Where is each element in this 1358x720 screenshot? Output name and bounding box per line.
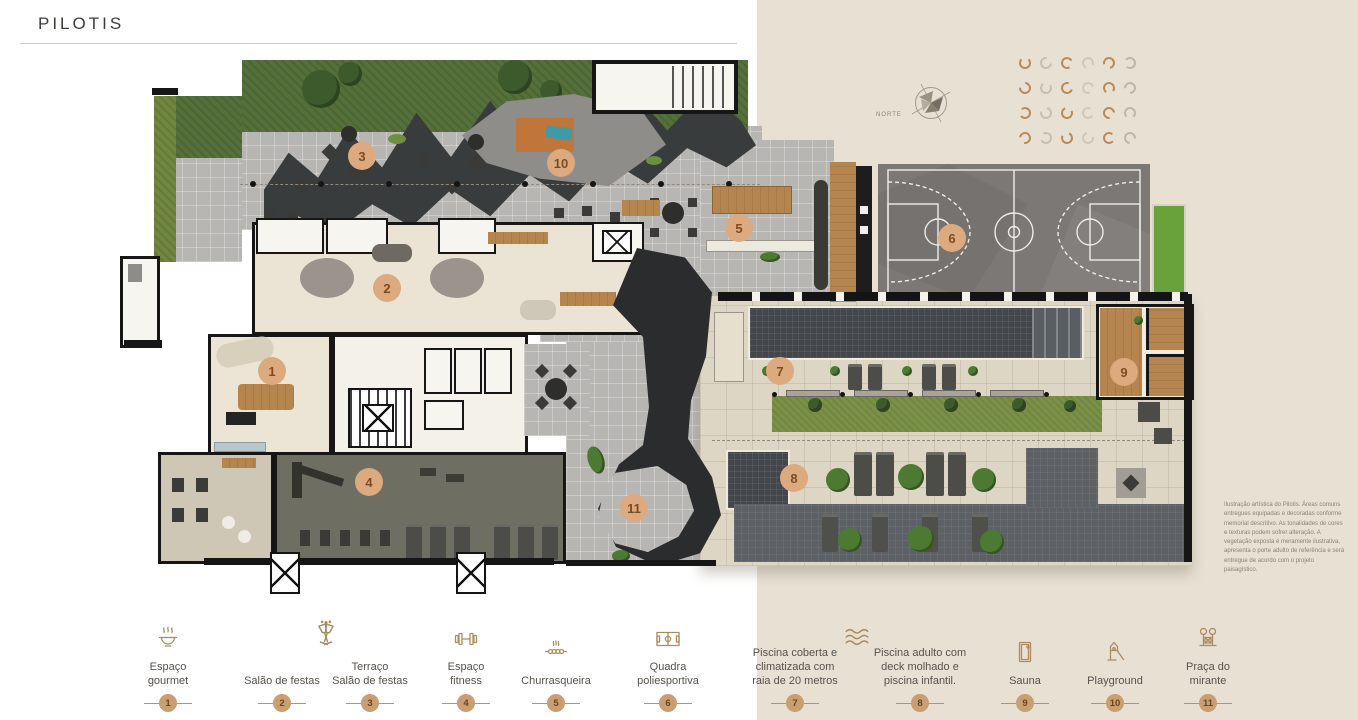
lounge-seat [554, 208, 564, 218]
gym-equipment [380, 530, 390, 546]
legend-item-espaco-gourmet: Espaço gourmet 1 [104, 618, 232, 712]
lawn-bench [990, 390, 1044, 397]
seating-cube [1138, 402, 1160, 422]
column-dot [386, 181, 392, 187]
column-dot [1044, 392, 1049, 397]
legend-item-churrasqueira: Churrasqueira 5 [492, 618, 620, 712]
left-hedge-strip [154, 96, 176, 262]
legend-badge: 2 [258, 694, 306, 712]
workout-bench [420, 468, 436, 476]
lawn-strip [772, 396, 1102, 432]
party-table [430, 258, 484, 298]
column-dot [908, 392, 913, 397]
pool-lounger [922, 364, 936, 390]
seating-cube [1154, 428, 1172, 444]
sauna-door-icon [1010, 638, 1040, 668]
lawn-tree [1064, 400, 1076, 412]
colonnade-wall [718, 292, 1188, 301]
restroom-block [256, 218, 324, 254]
terrace-table [341, 126, 357, 142]
badge-number: 7 [786, 694, 804, 712]
gym-equipment [340, 530, 350, 546]
page: PILOTIS NORTE Ilustração artística do Pi… [0, 0, 1358, 720]
tree [302, 70, 340, 108]
column-dot [318, 181, 324, 187]
dumbbell-icon [451, 624, 481, 654]
badge-number: 6 [659, 694, 677, 712]
garden-corner-wall [152, 88, 178, 95]
column-dot [454, 181, 460, 187]
legend-label: Churrasqueira [521, 674, 591, 688]
service-shaft [456, 552, 486, 594]
pool-plant [830, 366, 840, 376]
bbq-appliance [860, 226, 868, 234]
legend-label: Piscina coberta e climatizada com raia d… [752, 646, 838, 688]
lawn-tree [944, 398, 958, 412]
pouf [238, 530, 251, 543]
badge-line [804, 703, 819, 704]
deck-plant [826, 468, 850, 492]
deck-lounger [926, 452, 944, 496]
deck-lounger [948, 452, 966, 496]
badge-number: 8 [911, 694, 929, 712]
badge-line [379, 703, 394, 704]
wet-deck-side [1026, 448, 1098, 508]
legend-badge: 5 [532, 694, 580, 712]
legend-label: Espaço fitness [448, 660, 485, 688]
badge-number: 1 [159, 694, 177, 712]
badge-line [1184, 703, 1199, 704]
deck-plant [972, 468, 996, 492]
plan-marker-2: 2 [373, 274, 401, 302]
legend-label: Terraço Salão de festas [332, 660, 408, 688]
deck-plant [898, 464, 924, 490]
lounge-seat [582, 206, 592, 216]
kitchen-counter [214, 442, 266, 452]
pool-lounger [868, 364, 882, 390]
pool-plant [902, 366, 912, 376]
legend-item-praca-mirante: Praça do mirante 11 [1144, 618, 1272, 712]
plan-marker-4: 4 [355, 468, 383, 496]
badge-line [644, 703, 659, 704]
badge-line [929, 703, 944, 704]
legend-badge: 3 [346, 694, 394, 712]
badge-line [896, 703, 911, 704]
round-table [545, 378, 567, 400]
badge-line [442, 703, 457, 704]
party-table [300, 258, 354, 298]
pool-steps [1032, 308, 1082, 358]
legend-label: Sauna [1009, 674, 1041, 688]
round-dining-table [662, 202, 684, 224]
lounge-bench [222, 458, 256, 468]
badge-line [1124, 703, 1139, 704]
plan-marker-1: 1 [258, 357, 286, 385]
lawn-bench [786, 390, 840, 397]
lawn-tree [1012, 398, 1026, 412]
shrub [388, 134, 406, 144]
badge-line [177, 703, 192, 704]
badge-line [1217, 703, 1232, 704]
column-dot [976, 392, 981, 397]
sauna-plant [1134, 316, 1143, 325]
legend-badge: 1 [144, 694, 192, 712]
badge-line [291, 703, 306, 704]
lounge-armchair [196, 508, 208, 522]
plan-marker-5: 5 [725, 214, 753, 242]
bbq-appliance [860, 206, 868, 214]
east-boundary-wall [1184, 294, 1192, 562]
wall-segment [124, 340, 162, 348]
badge-number: 2 [273, 694, 291, 712]
badge-number: 3 [361, 694, 379, 712]
core-elevator [362, 404, 394, 432]
lawn-bench [922, 390, 976, 397]
sports-court-icon [653, 624, 683, 654]
legend-badge: 8 [896, 694, 944, 712]
elevator-cab [424, 348, 452, 394]
badge-line [1091, 703, 1106, 704]
playground-slide-icon [1100, 638, 1130, 668]
treadmill [518, 524, 534, 560]
alignment-dashed-line [712, 440, 1190, 441]
plan-marker-8: 8 [780, 464, 808, 492]
badge-line [346, 703, 361, 704]
column-dot [522, 181, 528, 187]
legend-label: Praça do mirante [1186, 660, 1230, 688]
gourmet-table [238, 384, 294, 410]
plan-marker-6: 6 [938, 224, 966, 252]
deck-lounger [822, 514, 838, 552]
gym-equipment [300, 530, 310, 546]
lawn-tree [808, 398, 822, 412]
tree [498, 60, 532, 94]
badge-line [565, 703, 580, 704]
pool-lounger [942, 364, 956, 390]
legend-badge: 10 [1091, 694, 1139, 712]
workout-bench [446, 474, 464, 482]
floor-plan: 1234567891011 [0, 0, 1358, 720]
viewpoint-icon [1193, 624, 1223, 654]
dining-chair [688, 228, 697, 237]
legend-label: Espaço gourmet [148, 660, 188, 688]
dining-chair [650, 228, 659, 237]
legend-item-quadra: Quadra poliesportiva 6 [604, 618, 732, 712]
column-dot [658, 181, 664, 187]
bottom-wall [566, 560, 716, 566]
treadmill [494, 524, 510, 560]
plan-marker-10: 10 [547, 149, 575, 177]
gym-equipment [360, 530, 370, 546]
treadmill [406, 524, 422, 560]
core-wc [424, 400, 464, 430]
gym-equipment [320, 530, 330, 546]
column-dot [772, 392, 777, 397]
pool-plant [968, 366, 978, 376]
column-dot [590, 181, 596, 187]
basketball-court [878, 164, 1150, 300]
vestibule-fixture [128, 264, 142, 282]
deck-plant [980, 530, 1004, 554]
bbq-wood-deck [830, 162, 856, 302]
badge-line [144, 703, 159, 704]
sideboard [488, 232, 548, 244]
lawn-tree [876, 398, 890, 412]
badge-line [532, 703, 547, 704]
lounge-armchair [196, 478, 208, 492]
badge-line [771, 703, 786, 704]
lounge-armchair [172, 508, 184, 522]
badge-line [1034, 703, 1049, 704]
top-stairwell-treads [672, 66, 730, 108]
plan-marker-9: 9 [1110, 358, 1138, 386]
treadmill [542, 524, 558, 560]
badge-number: 4 [457, 694, 475, 712]
service-shaft [270, 552, 300, 594]
gourmet-bowl-icon [153, 624, 183, 654]
party-sofa [520, 300, 556, 320]
badge-number: 11 [1199, 694, 1217, 712]
deck-lounger [854, 452, 872, 496]
badge-number: 10 [1106, 694, 1124, 712]
pool-lounger [848, 364, 862, 390]
lounge-seat [610, 212, 620, 222]
plan-marker-11: 11 [620, 494, 648, 522]
lounge-armchair [172, 478, 184, 492]
kitchen-island [226, 412, 256, 425]
column-dot [250, 181, 256, 187]
legend-badge: 6 [644, 694, 692, 712]
pouf [222, 516, 235, 529]
legend-badge: 4 [442, 694, 490, 712]
elevator-cab [454, 348, 482, 394]
terrace-table [468, 134, 484, 150]
plan-marker-7: 7 [766, 357, 794, 385]
lawn-bench [854, 390, 908, 397]
legend-badge: 11 [1184, 694, 1232, 712]
column-dot [840, 392, 845, 397]
badge-line [1001, 703, 1016, 704]
treadmill [430, 524, 446, 560]
elevator-shaft [602, 230, 632, 254]
reception-desk [622, 200, 660, 216]
bar-counter [560, 292, 616, 306]
pool-side-bench [714, 312, 744, 382]
bbq-bench [706, 240, 816, 252]
stone-coffee-table [372, 244, 412, 262]
deck-plant [908, 526, 934, 552]
legend-label: Quadra poliesportiva [637, 660, 699, 688]
badge-line [258, 703, 273, 704]
deck-lounger [876, 452, 894, 496]
badge-number: 9 [1016, 694, 1034, 712]
tree [338, 62, 362, 86]
bbq-planter [760, 252, 780, 262]
grill-icon [541, 638, 571, 668]
bbq-dark-bench [814, 180, 828, 290]
legend-badge: 9 [1001, 694, 1049, 712]
legend-label: Piscina adulto com deck molhado e piscin… [874, 646, 966, 688]
dining-chair [688, 198, 697, 207]
deck-plant [838, 528, 862, 552]
wet-deck [734, 504, 1186, 562]
bottom-wall [204, 558, 554, 565]
badge-number: 5 [547, 694, 565, 712]
legend-badge: 7 [771, 694, 819, 712]
badge-line [475, 703, 490, 704]
bbq-dining-table [712, 186, 792, 214]
plan-marker-3: 3 [348, 142, 376, 170]
badge-line [677, 703, 692, 704]
legend-label: Playground [1087, 674, 1143, 688]
elevator-cab [484, 348, 512, 394]
court-side-lawn [1152, 204, 1186, 302]
deck-lounger [872, 514, 888, 552]
